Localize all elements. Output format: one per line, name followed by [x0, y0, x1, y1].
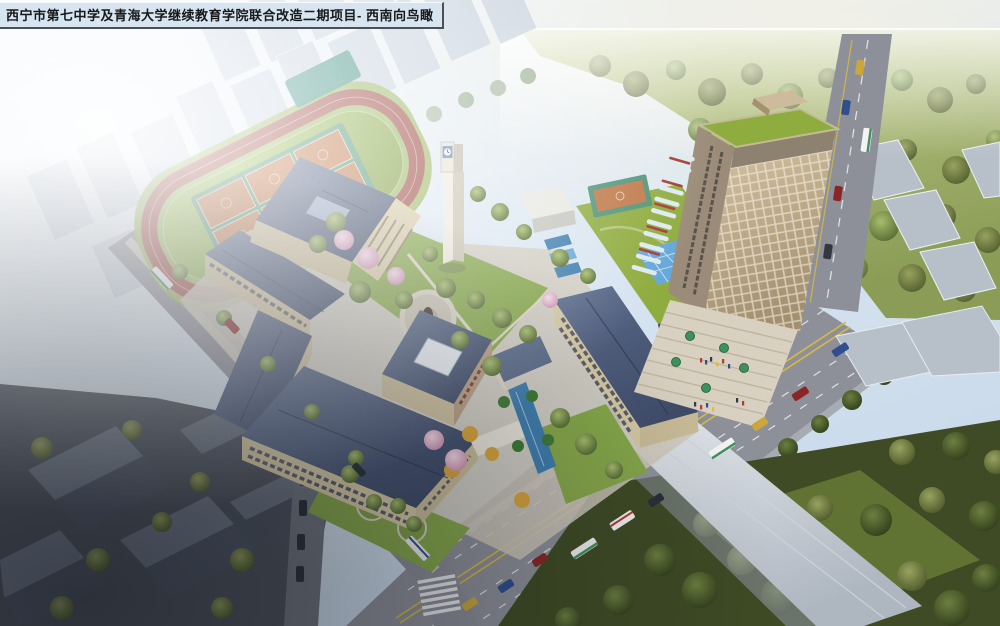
- aerial-rendering: [0, 0, 1000, 626]
- drawing-title-label: 西宁市第七中学及青海大学继续教育学院联合改造二期项目- 西南向鸟瞰: [0, 2, 444, 29]
- rendering-viewport: 西宁市第七中学及青海大学继续教育学院联合改造二期项目- 西南向鸟瞰: [0, 0, 1000, 626]
- shade-overlay: [0, 0, 1000, 626]
